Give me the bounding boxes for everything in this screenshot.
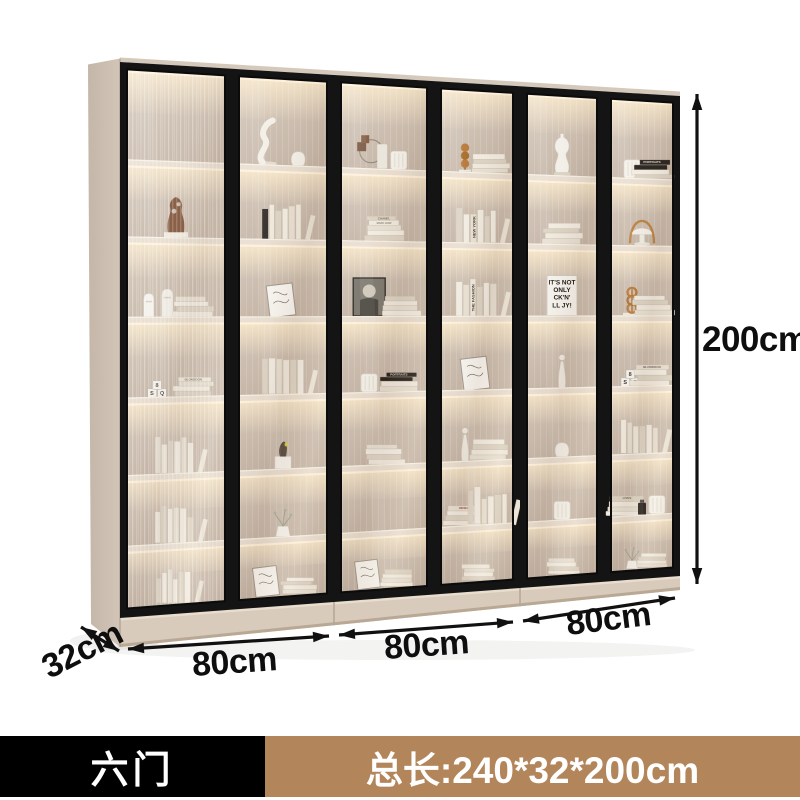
variant-name-badge: 六门 (0, 736, 265, 797)
caption-bar: 六门 总长:240*32*200cm (0, 736, 800, 797)
width-dimension-label-2: 80cm (383, 623, 470, 668)
width-dimension-label-1: 80cm (191, 640, 278, 685)
height-dimension-label: 200cm (702, 320, 800, 360)
total-dimensions-badge: 总长:240*32*200cm (265, 736, 800, 797)
height-arrow (692, 94, 703, 584)
product-dimension-image: SQ8BLONDOONCHANELMARC HOWPORTRAITSNEW YO… (0, 0, 800, 800)
bookcase-illustration: SQ8BLONDOONCHANELMARC HOWPORTRAITSNEW YO… (0, 0, 800, 800)
